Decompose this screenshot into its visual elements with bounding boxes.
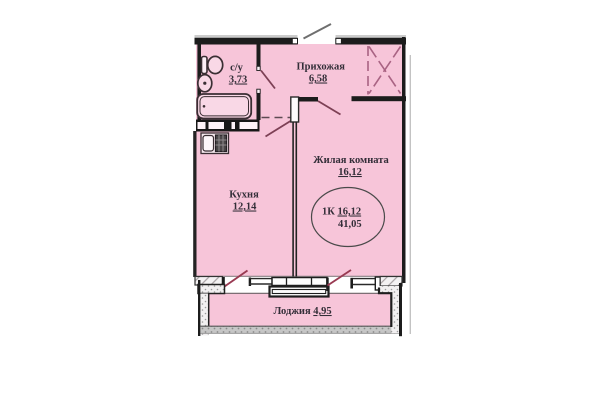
- svg-text:Прихожая: Прихожая: [296, 62, 345, 73]
- svg-text:12,14: 12,14: [233, 202, 257, 213]
- svg-text:16,12: 16,12: [338, 167, 362, 178]
- svg-text:Кухня: Кухня: [229, 190, 259, 201]
- svg-text:1К 16,12: 1К 16,12: [322, 207, 361, 218]
- svg-text:Лоджия 4,95: Лоджия 4,95: [274, 306, 332, 317]
- svg-text:41,05: 41,05: [338, 219, 362, 230]
- svg-text:6,58: 6,58: [309, 74, 327, 85]
- svg-text:3,73: 3,73: [229, 75, 247, 86]
- svg-text:Жилая комната: Жилая комната: [313, 155, 389, 166]
- svg-text:с/у: с/у: [230, 63, 244, 74]
